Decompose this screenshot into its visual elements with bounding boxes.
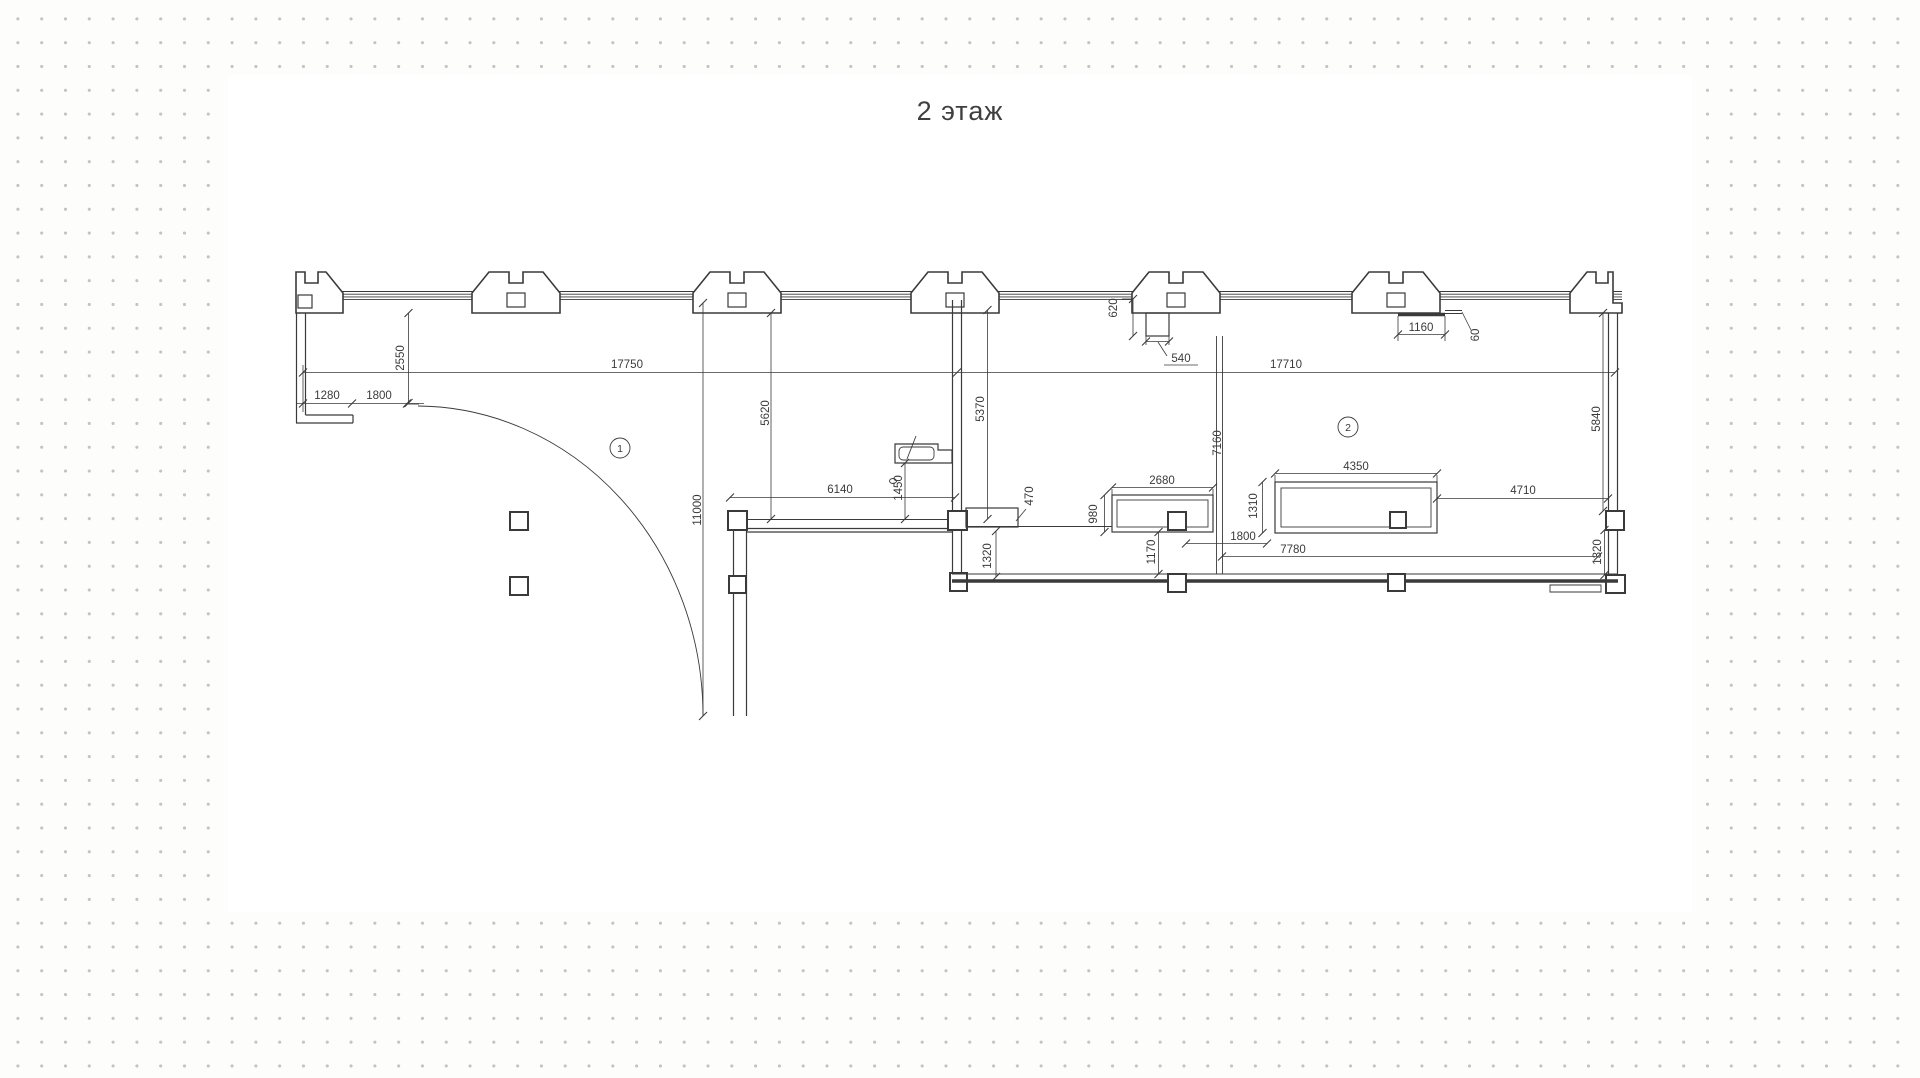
- dim-label-1450: 1450: [893, 475, 905, 501]
- dim-label-6140: 6140: [827, 484, 853, 496]
- interior-wall-a: [728, 511, 952, 716]
- dim-label-1800-right: 1800: [1230, 531, 1256, 543]
- interior-wall-b: [948, 300, 1112, 591]
- dim-label-4350: 4350: [1343, 461, 1369, 473]
- floor-plan-svg: 17750 17710 1280 1800 2550 5620 11000 53…: [0, 0, 1920, 1078]
- pilaster-6: [1352, 272, 1440, 313]
- dim-label-2550: 2550: [395, 345, 407, 371]
- dim-label-620: 620: [1108, 298, 1120, 317]
- column-room1-b: [510, 577, 528, 595]
- pilaster-4: [911, 272, 999, 313]
- door-arc: [418, 406, 703, 716]
- dim-label-1310: 1310: [1248, 493, 1260, 519]
- room-2-label: 2: [1345, 422, 1351, 434]
- room-1-label: 1: [617, 443, 623, 455]
- dim-label-4710: 4710: [1510, 485, 1536, 497]
- right-wall: [1606, 313, 1625, 593]
- shaft-box-2: [1275, 482, 1437, 533]
- duct-protrusion: [1146, 313, 1169, 336]
- pilaster-2: [472, 272, 560, 313]
- left-wall: [296, 313, 353, 423]
- dim-label-17750: 17750: [611, 359, 643, 371]
- pilaster-corner-left: [296, 272, 343, 313]
- shaft-box-1: [1112, 495, 1213, 532]
- dim-label-5840: 5840: [1591, 406, 1603, 432]
- dim-label-470: 470: [1024, 486, 1036, 505]
- dim-label-17710: 17710: [1270, 359, 1302, 371]
- dim-label-1280: 1280: [314, 390, 340, 402]
- room-2-bubble: 2: [1338, 417, 1358, 437]
- page-background: { "title": "2 этаж", "colors": { "line":…: [0, 0, 1920, 1078]
- dimension-lines: [296, 295, 1619, 720]
- dim-label-11000: 11000: [692, 494, 704, 525]
- dim-label-60: 60: [1470, 329, 1482, 342]
- column-room1-a: [510, 512, 528, 530]
- dim-label-7780: 7780: [1280, 544, 1306, 556]
- dim-label-1160: 1160: [1409, 322, 1434, 334]
- bottom-wall: [952, 574, 1618, 592]
- dim-label-2680: 2680: [1149, 475, 1175, 487]
- pilaster-5: [1132, 272, 1220, 313]
- pilaster-corner-right: [1570, 272, 1622, 313]
- dim-label-980: 980: [1088, 504, 1100, 523]
- dim-label-5370: 5370: [975, 396, 987, 422]
- dim-label-5620: 5620: [760, 400, 772, 426]
- dim-label-540: 540: [1171, 353, 1190, 365]
- dim-label-1170: 1170: [1146, 540, 1158, 565]
- pilaster-3: [693, 272, 781, 313]
- dim-label-7160: 7160: [1212, 430, 1224, 456]
- dim-label-1320-right: 1320: [1592, 539, 1604, 565]
- room-1-bubble: 1: [610, 438, 630, 458]
- dim-label-1800-left: 1800: [366, 390, 392, 402]
- dim-label-1320-left: 1320: [982, 543, 994, 569]
